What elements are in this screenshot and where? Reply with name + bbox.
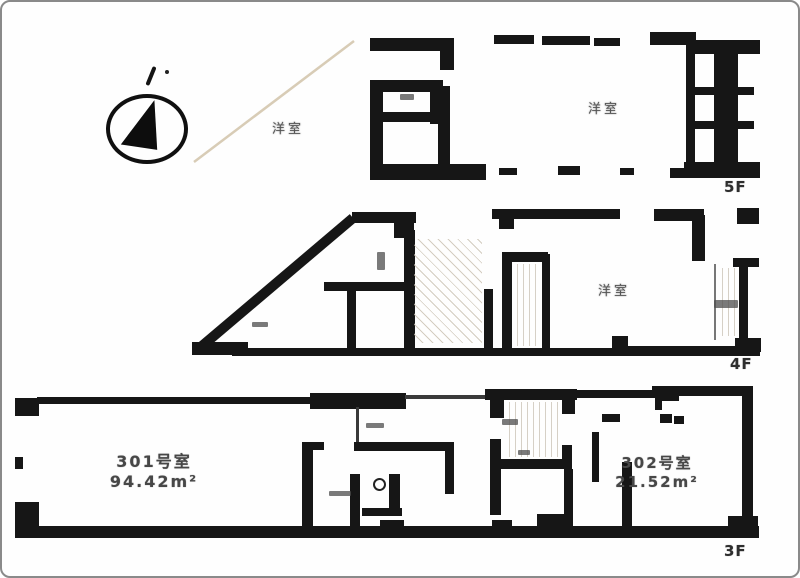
wall-segment (490, 439, 501, 515)
closet-mark (674, 416, 684, 424)
floor-plan-3f: 301号室 94.42m² 302号室 21.52m² 3F (2, 2, 798, 576)
wall-corner (728, 516, 758, 538)
wall-segment (602, 414, 620, 422)
wall-segment (362, 508, 402, 516)
wall-segment (562, 445, 572, 469)
tiny-room-annotation (366, 423, 384, 428)
wall-segment (350, 474, 360, 526)
wall-segment (562, 394, 575, 414)
wall-segment (742, 386, 753, 528)
wall-segment (492, 520, 512, 532)
wall-segment (354, 442, 452, 451)
wall-corner (15, 398, 39, 416)
wall-segment (592, 432, 599, 482)
wall-segment (445, 442, 454, 494)
unit-label-301: 301号室 94.42m² (92, 452, 216, 492)
wall-segment (302, 442, 324, 450)
unit-301-name: 301号室 (92, 452, 216, 472)
unit-302-name: 302号室 (600, 454, 714, 473)
elevator-block (537, 514, 573, 532)
tiny-room-annotation (518, 450, 530, 455)
unit-302-area: 21.52m² (600, 473, 714, 492)
unit-label-302: 302号室 21.52m² (600, 454, 714, 492)
staircase-hatch (504, 402, 560, 457)
toilet-icon (373, 478, 386, 491)
wall-segment (37, 397, 312, 404)
wall-segment (302, 442, 313, 527)
closet-mark (660, 414, 672, 423)
unit-301-area: 94.42m² (92, 472, 216, 492)
window-dash (15, 457, 23, 469)
floor-label-3f: 3F (724, 542, 747, 560)
wall-segment (490, 394, 504, 418)
tiny-room-annotation (502, 419, 518, 425)
floor-plan-page: 洋室 洋室 5F 洋室 4F (0, 0, 800, 578)
wall-segment (564, 469, 573, 515)
wall-segment (380, 520, 404, 530)
wall-segment (575, 390, 655, 398)
wall-segment (655, 394, 662, 410)
partition-line (356, 407, 359, 442)
tiny-room-annotation (329, 491, 351, 496)
window-line (405, 395, 485, 399)
